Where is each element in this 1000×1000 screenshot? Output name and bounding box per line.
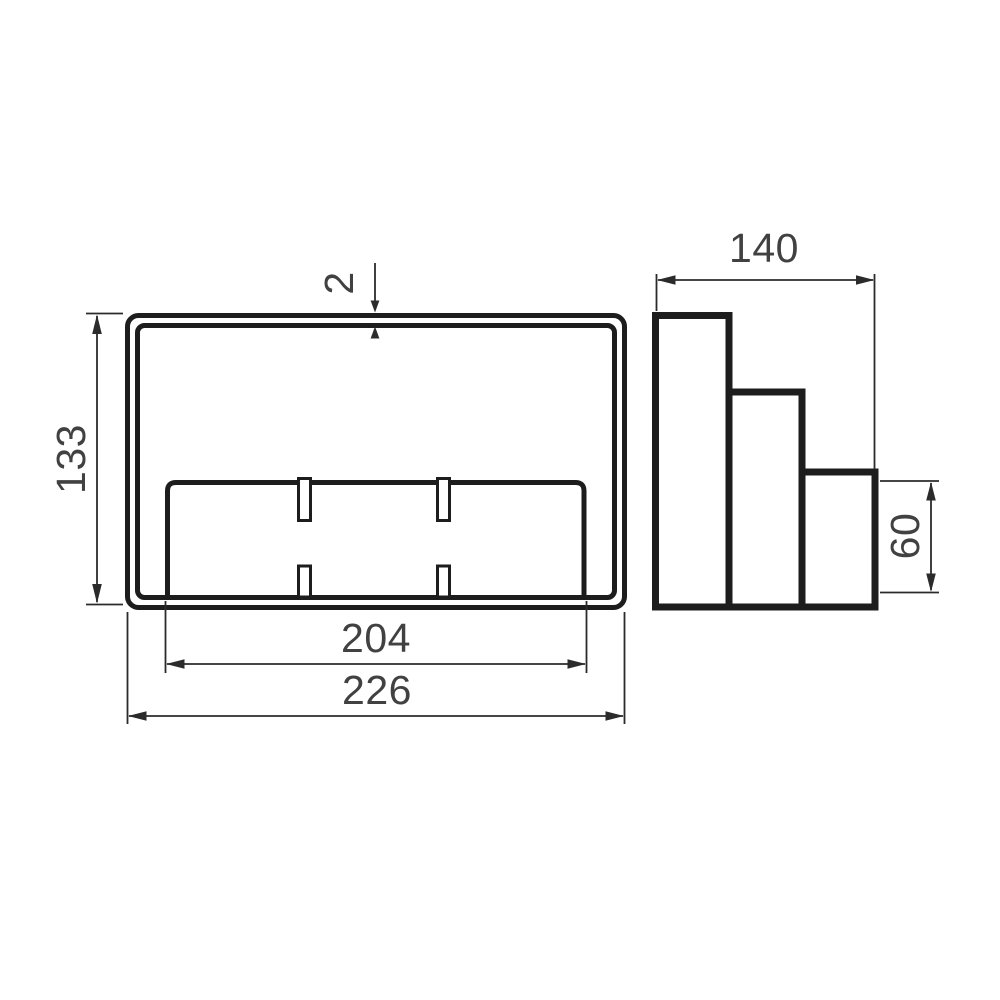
slot-bottom-left xyxy=(299,566,311,597)
dim-label-front-height: 133 xyxy=(48,424,94,494)
dim-label-wall-thickness: 2 xyxy=(316,271,362,294)
dimension-front-height: 133 xyxy=(48,314,123,605)
side-step-2-outline xyxy=(729,392,802,607)
side-step-1-outline xyxy=(656,316,730,608)
arrowhead-down-icon xyxy=(926,574,936,593)
dim-label-inner-width: 204 xyxy=(341,615,411,661)
front-view xyxy=(128,316,625,608)
dim-label-side-depth: 140 xyxy=(729,225,799,271)
technical-drawing: 2 133 204 226 140 xyxy=(0,0,1000,1000)
front-inner-panel-outline xyxy=(168,483,585,598)
slot-top-right xyxy=(438,479,450,521)
dim-label-outer-width: 226 xyxy=(342,667,412,713)
arrowhead-left-icon xyxy=(128,711,147,721)
arrowhead-right-icon xyxy=(568,659,587,669)
front-outer-wall-outline xyxy=(128,316,625,608)
arrowhead-left-icon xyxy=(166,659,185,669)
drawing-canvas: 2 133 204 226 140 xyxy=(0,0,1000,1000)
arrowhead-up-icon xyxy=(92,315,102,335)
arrowhead-up-icon xyxy=(371,327,380,339)
dim-label-step-height: 60 xyxy=(882,513,928,560)
arrowhead-right-icon xyxy=(856,275,875,285)
side-step-3-outline xyxy=(802,472,875,607)
front-inner-wall-outline xyxy=(138,326,615,598)
side-view xyxy=(656,316,876,608)
arrowhead-right-icon xyxy=(606,711,625,721)
arrowhead-down-icon xyxy=(92,584,102,604)
arrowhead-left-icon xyxy=(657,275,676,285)
arrowhead-up-icon xyxy=(926,482,936,501)
slot-top-left xyxy=(299,479,311,521)
arrowhead-down-icon xyxy=(371,301,380,313)
dimension-inner-width: 204 xyxy=(166,601,587,673)
dimension-step-height: 60 xyxy=(880,481,939,593)
slot-bottom-right xyxy=(438,566,450,597)
